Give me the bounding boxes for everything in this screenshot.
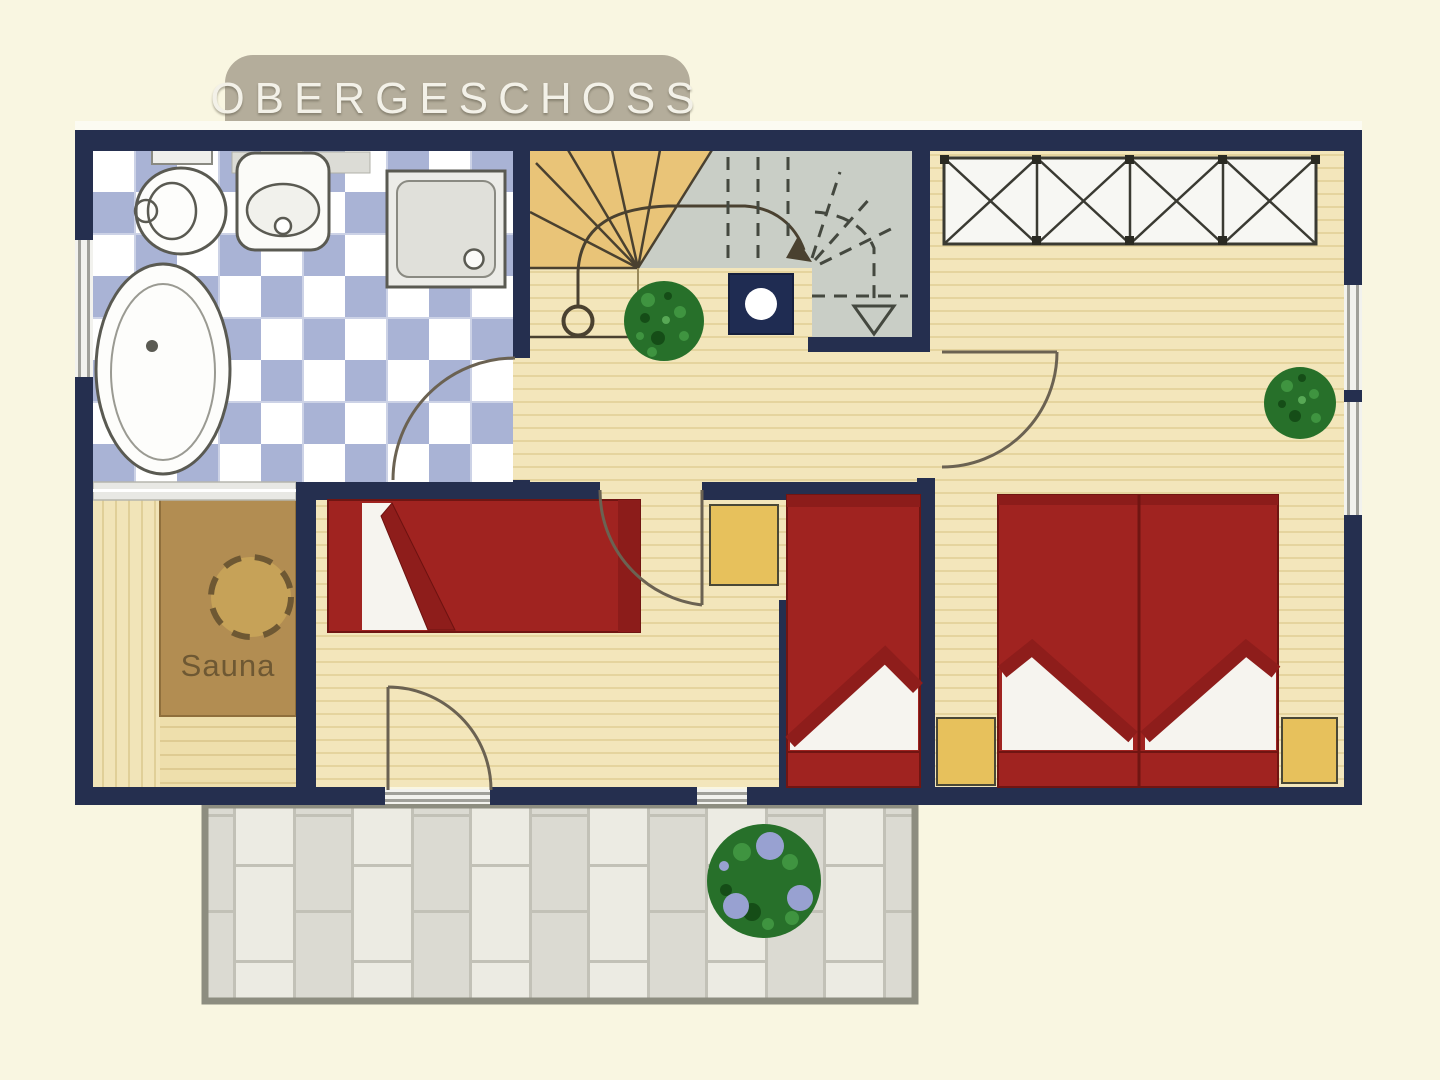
nightstand-1 bbox=[710, 505, 778, 585]
window-east bbox=[1344, 285, 1362, 515]
wall-stair-bedroom3 bbox=[912, 150, 930, 352]
sauna-room bbox=[93, 482, 296, 787]
nightstand-3 bbox=[1282, 718, 1337, 783]
plant-bedroom3-icon bbox=[1264, 367, 1336, 439]
bed-single-1 bbox=[328, 500, 640, 632]
partition-bedroom1-bedroom2 bbox=[779, 600, 786, 787]
sauna-floor-front bbox=[160, 716, 296, 787]
nightstand-2 bbox=[937, 718, 995, 785]
terrace-window-threshold bbox=[697, 789, 747, 804]
terrace-door-threshold bbox=[385, 789, 490, 804]
wall-east-upper bbox=[1344, 130, 1362, 285]
bed-double bbox=[998, 495, 1278, 787]
wall-under-stairs bbox=[808, 337, 928, 352]
shower-icon bbox=[387, 171, 505, 287]
floorplan-page: OBERGESCHOSS bbox=[0, 0, 1440, 1080]
wall-south-3 bbox=[747, 787, 1362, 805]
bathtub-icon bbox=[96, 264, 230, 474]
wall-west-upper bbox=[75, 130, 93, 240]
window-west bbox=[75, 240, 93, 377]
wall-south-2 bbox=[490, 787, 697, 805]
wall-north bbox=[75, 130, 1362, 151]
wall-sauna-bedroom1 bbox=[296, 500, 316, 787]
sink-icon bbox=[237, 153, 329, 250]
bed-single-2 bbox=[787, 495, 920, 787]
plant-terrace-icon bbox=[707, 824, 821, 938]
sauna-label: Sauna bbox=[162, 648, 294, 684]
chimney-block bbox=[729, 274, 793, 334]
wall-east-lower bbox=[1344, 515, 1362, 805]
plant-hall-icon bbox=[624, 281, 704, 361]
sauna-stove-icon bbox=[211, 557, 291, 637]
wall-bath-stair bbox=[513, 150, 530, 358]
sauna-glass-line bbox=[93, 489, 296, 492]
wall-west-lower bbox=[75, 377, 93, 805]
floorplan-drawing bbox=[0, 0, 1440, 1080]
wall-top-highlight bbox=[75, 121, 1362, 130]
wall-south-1 bbox=[75, 787, 385, 805]
bathroom bbox=[93, 148, 513, 482]
wardrobe bbox=[940, 155, 1320, 245]
wall-hall-south-1 bbox=[296, 482, 600, 500]
sauna-floor-left bbox=[93, 500, 160, 787]
